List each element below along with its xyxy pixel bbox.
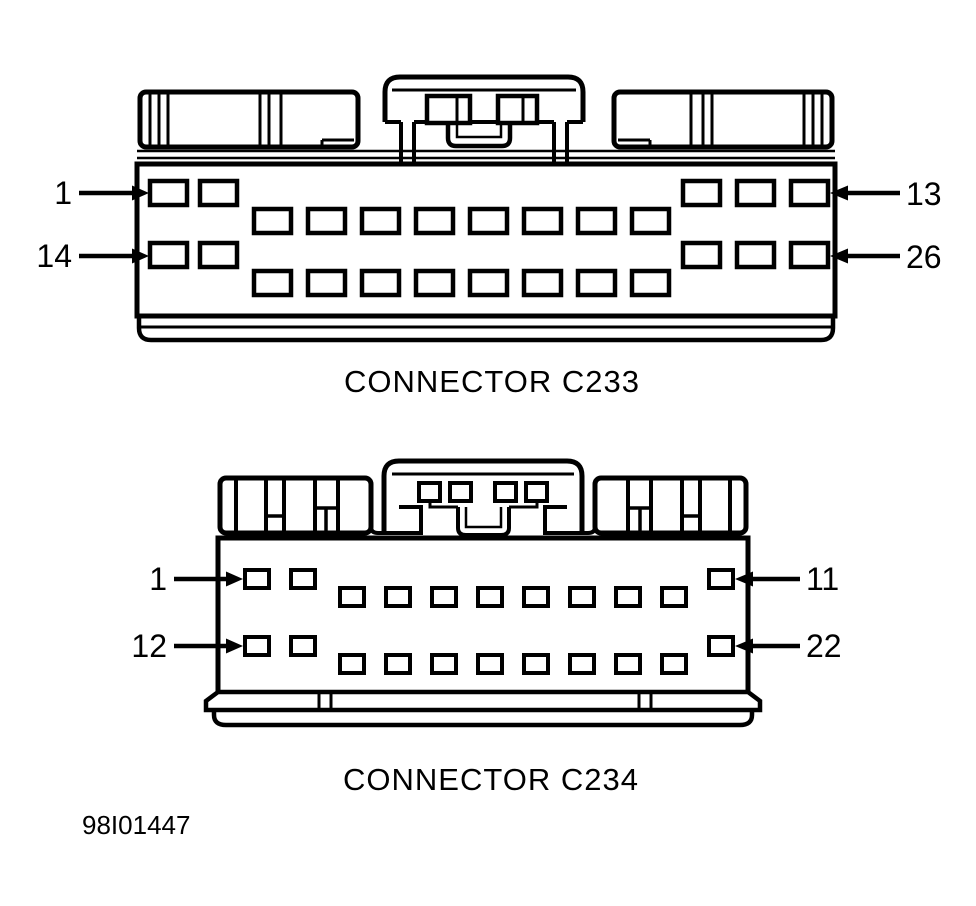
pin-cavity <box>291 637 315 655</box>
callout-pin-1: 1 <box>149 561 243 597</box>
pin-cavity <box>432 655 456 673</box>
c234-latch-notch <box>495 483 516 501</box>
c234-left-wing-notches <box>266 508 338 533</box>
callout-pin-13: 13 <box>830 176 942 212</box>
pin-cavity <box>245 570 269 588</box>
pin-cavity <box>478 655 502 673</box>
callout-pin-22: 22 <box>735 628 842 664</box>
arrowhead-left-icon <box>735 572 753 587</box>
pin-cavity <box>432 588 456 606</box>
callout-pin-14: 14 <box>36 238 149 274</box>
pin-cavity <box>478 588 502 606</box>
c233-caption: CONNECTOR C233 <box>344 364 640 399</box>
pin-cavity <box>150 181 187 205</box>
c234-left-wing <box>220 478 371 533</box>
c233-latch-notch <box>498 96 537 123</box>
pin-cavity <box>200 243 237 267</box>
arrowhead-right-icon <box>226 639 243 654</box>
pin-cavity <box>709 570 733 588</box>
c234-left-wing-slats <box>236 478 338 533</box>
c234-right-wing <box>595 478 746 533</box>
arrowhead-right-icon <box>132 249 149 264</box>
pin-label: 11 <box>806 561 839 597</box>
pin-cavity <box>524 655 548 673</box>
pin-cavity <box>362 271 399 295</box>
pin-cavity <box>150 243 187 267</box>
connector-c234: 1 11 12 22 CONNECTOR C234 <box>131 461 841 797</box>
pin-cavity <box>200 181 237 205</box>
pin-cavity <box>416 271 453 295</box>
pin-cavity <box>791 243 828 267</box>
c233-left-wing-ribs <box>150 92 354 147</box>
pin-cavity <box>683 243 720 267</box>
pin-cavity <box>616 655 640 673</box>
pin-label: 14 <box>36 238 72 274</box>
pin-cavity <box>340 588 364 606</box>
c234-latch-notch <box>450 483 471 501</box>
pin-cavity <box>662 588 686 606</box>
callout-pin-11: 11 <box>735 561 839 597</box>
pin-cavity <box>386 655 410 673</box>
c233-latch-bridge <box>385 77 583 122</box>
pin-cavity <box>632 209 669 233</box>
pin-label: 1 <box>54 175 72 211</box>
c234-callouts: 1 11 12 22 <box>131 561 841 664</box>
arrowhead-right-icon <box>226 572 243 587</box>
pin-label: 26 <box>906 239 942 275</box>
pin-label: 22 <box>806 628 842 664</box>
pin-cavity <box>662 655 686 673</box>
pin-cavity <box>683 181 720 205</box>
pin-cavity <box>470 209 507 233</box>
pin-cavity <box>254 209 291 233</box>
c234-base-flare <box>206 692 760 710</box>
callout-pin-12: 12 <box>131 628 243 664</box>
pin-cavity <box>632 271 669 295</box>
c234-latch-bridge <box>384 461 582 535</box>
c234-right-wing-notches <box>628 508 700 533</box>
diagram-canvas: 1 13 14 26 CONNECTOR C233 <box>0 0 976 906</box>
c234-latch-notch <box>419 483 440 501</box>
pin-cavity <box>524 209 561 233</box>
pin-cavity <box>737 243 774 267</box>
pin-cavity <box>524 271 561 295</box>
arrowhead-right-icon <box>132 186 149 201</box>
connector-diagram-page: 1 13 14 26 CONNECTOR C233 <box>0 0 976 906</box>
pin-cavity <box>470 271 507 295</box>
c234-latch-channel-inner <box>466 507 501 527</box>
pin-cavity <box>308 271 345 295</box>
pin-cavity <box>254 271 291 295</box>
c233-right-wing-ribs <box>618 92 822 147</box>
figure-code: 98I01447 <box>82 810 190 840</box>
pin-cavity <box>578 209 615 233</box>
pin-cavity <box>791 181 828 205</box>
pin-cavity <box>308 209 345 233</box>
pin-label: 1 <box>149 561 167 597</box>
c234-right-wing-slats <box>628 478 730 533</box>
pin-cavity <box>386 588 410 606</box>
c233-shelf-lines <box>137 151 835 158</box>
pin-cavity <box>570 655 594 673</box>
c233-latch-notch <box>427 96 470 123</box>
pin-cavity <box>616 588 640 606</box>
pins-C234 <box>245 570 733 673</box>
c234-latch-left-hook <box>371 486 421 533</box>
callout-pin-26: 26 <box>830 239 942 275</box>
pin-cavity <box>737 181 774 205</box>
pin-cavity <box>578 271 615 295</box>
pin-cavity <box>416 209 453 233</box>
pin-cavity <box>709 637 733 655</box>
pin-label: 13 <box>906 176 942 212</box>
c234-latch <box>371 461 595 535</box>
pin-cavity <box>291 570 315 588</box>
connector-c233: 1 13 14 26 CONNECTOR C233 <box>36 77 941 399</box>
c234-latch-right-hook <box>545 486 595 533</box>
c234-latch-notch <box>526 483 547 501</box>
pin-cavity <box>245 637 269 655</box>
pin-label: 12 <box>131 628 167 664</box>
c234-latch-bars <box>430 501 537 507</box>
pins-C233 <box>150 181 828 295</box>
pin-cavity <box>570 588 594 606</box>
c234-caption: CONNECTOR C234 <box>343 762 639 797</box>
pin-cavity <box>362 209 399 233</box>
pin-cavity <box>340 655 364 673</box>
arrowhead-left-icon <box>735 639 753 654</box>
pin-cavity <box>524 588 548 606</box>
